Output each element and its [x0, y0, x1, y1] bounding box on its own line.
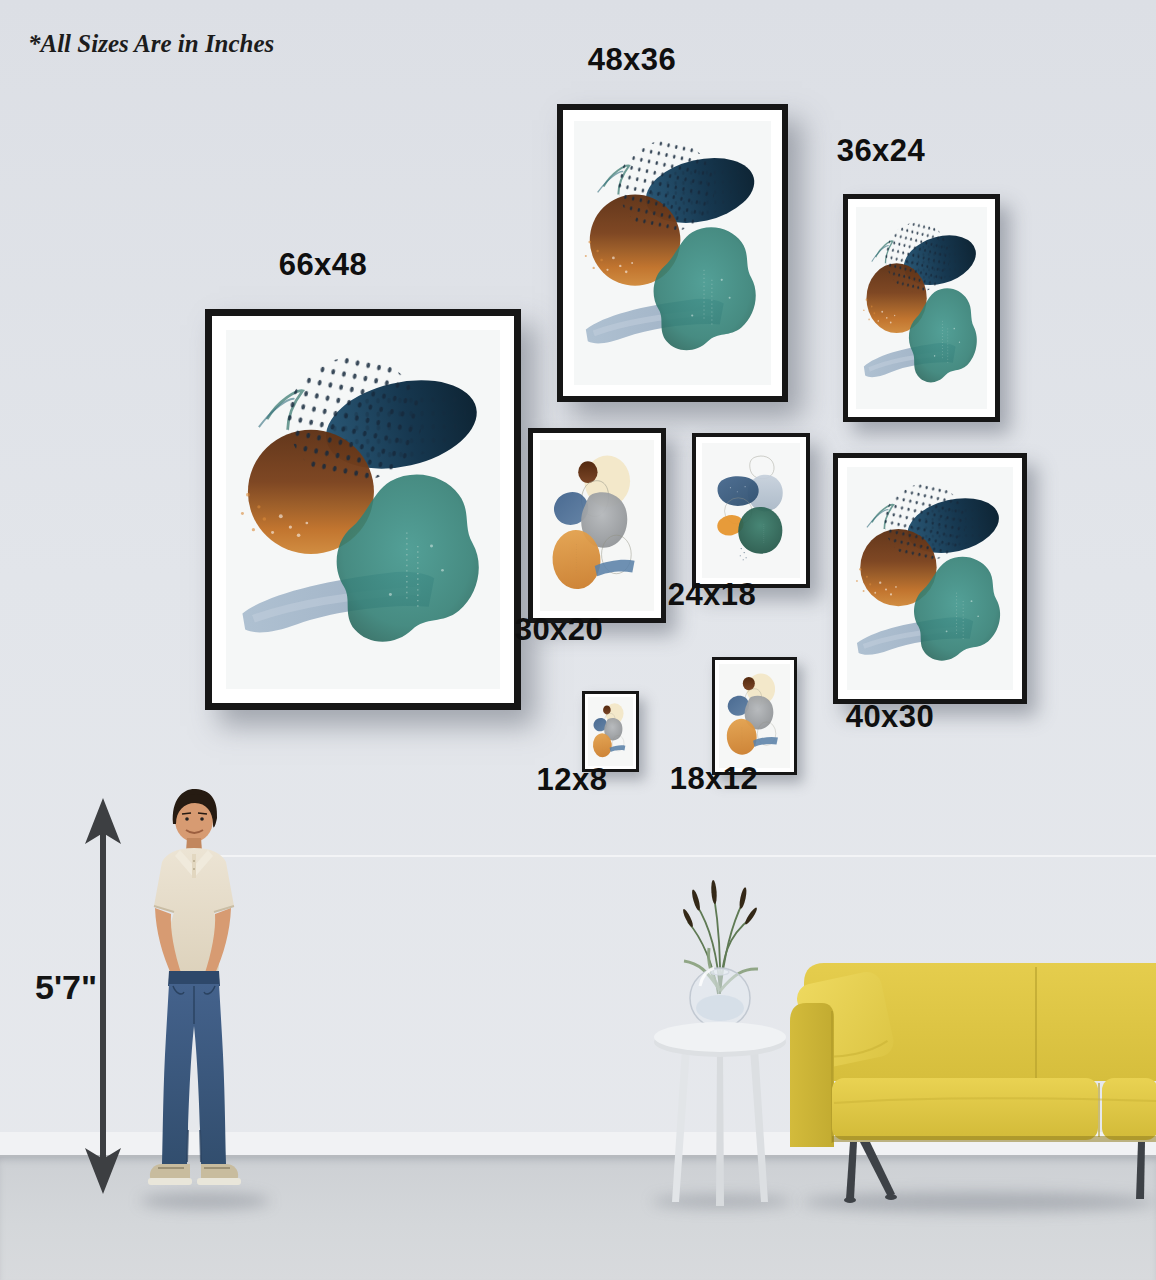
size-label-66x48: 66x48: [243, 247, 403, 283]
sofa: [788, 953, 1156, 1210]
abstract-artwork: [574, 121, 771, 385]
size-label-48x36: 48x36: [552, 42, 712, 78]
size-guide-scene: *All Sizes Are in Inches 66x48 48x36 36x…: [0, 0, 1156, 1280]
table-legs: [672, 1048, 768, 1206]
abstract-artwork: [719, 664, 790, 768]
size-label-18x12: 18x12: [634, 761, 794, 797]
poster-frame-18x12: [712, 657, 797, 775]
abstract-artwork: [847, 467, 1013, 690]
poster-frame-66x48: [205, 309, 521, 710]
poster-frame-24x18: [692, 433, 810, 588]
abstract-artwork: [856, 207, 987, 409]
wall-seam-line: [220, 855, 1156, 857]
size-label-36x24: 36x24: [801, 133, 961, 169]
abstract-artwork: [702, 443, 800, 578]
sofa-armrest: [790, 1003, 834, 1147]
size-label-24x18: 24x18: [632, 577, 792, 613]
poster-frame-40x30: [833, 453, 1027, 704]
sizes-note: *All Sizes Are in Inches: [28, 30, 274, 58]
size-label-40x30: 40x30: [810, 699, 970, 735]
height-label: 5'7": [6, 968, 126, 1007]
poster-frame-48x36: [557, 104, 788, 402]
abstract-artwork: [588, 697, 633, 766]
sofa-seat-cushion: [832, 1078, 1098, 1140]
sofa-legs: [844, 1142, 1145, 1203]
poster-frame-36x24: [843, 194, 1000, 422]
size-label-12x8: 12x8: [492, 762, 652, 798]
man-for-scale: [118, 786, 270, 1210]
side-table: [648, 876, 792, 1210]
size-label-30x20: 30x20: [479, 612, 639, 648]
abstract-artwork: [226, 330, 500, 689]
cattail-tips: [681, 880, 758, 928]
poster-frame-12x8: [582, 691, 639, 772]
